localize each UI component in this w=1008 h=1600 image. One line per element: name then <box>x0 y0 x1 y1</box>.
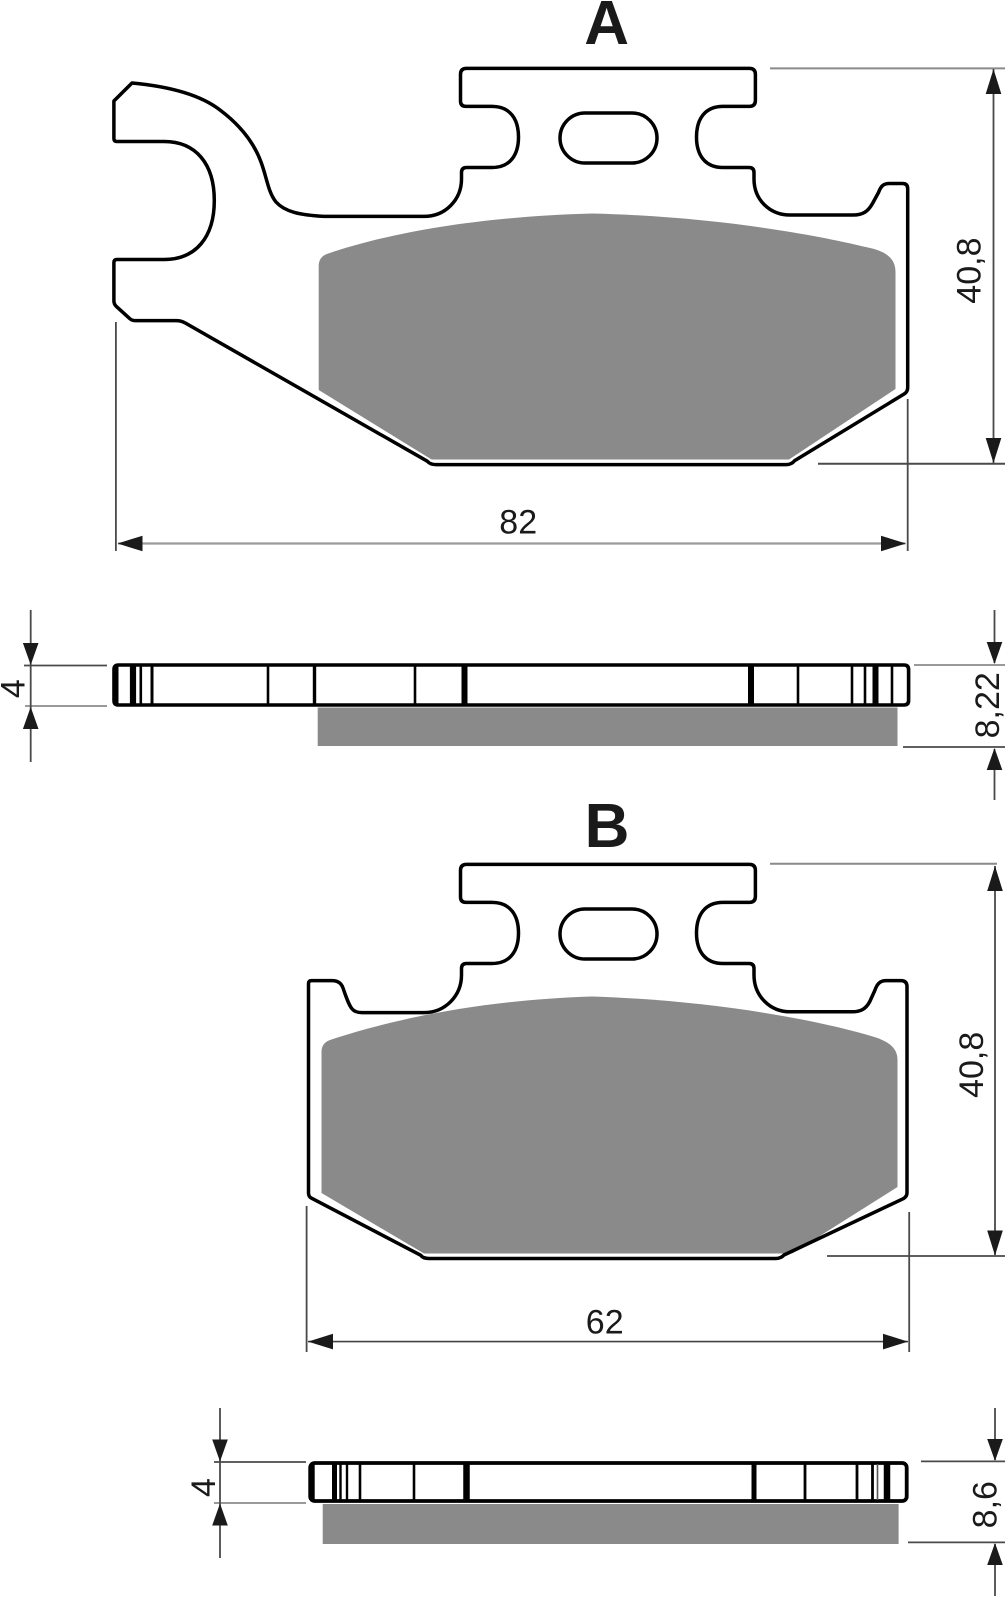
svg-text:A: A <box>584 0 629 58</box>
svg-text:40,8: 40,8 <box>951 238 989 304</box>
svg-text:8,22: 8,22 <box>969 672 1007 738</box>
svg-text:40,8: 40,8 <box>953 1032 991 1098</box>
svg-text:8,6: 8,6 <box>967 1481 1005 1528</box>
svg-text:82: 82 <box>499 503 537 541</box>
svg-text:4: 4 <box>185 1478 223 1497</box>
svg-text:4: 4 <box>0 679 32 698</box>
svg-text:B: B <box>585 792 630 861</box>
svg-text:62: 62 <box>586 1304 624 1342</box>
